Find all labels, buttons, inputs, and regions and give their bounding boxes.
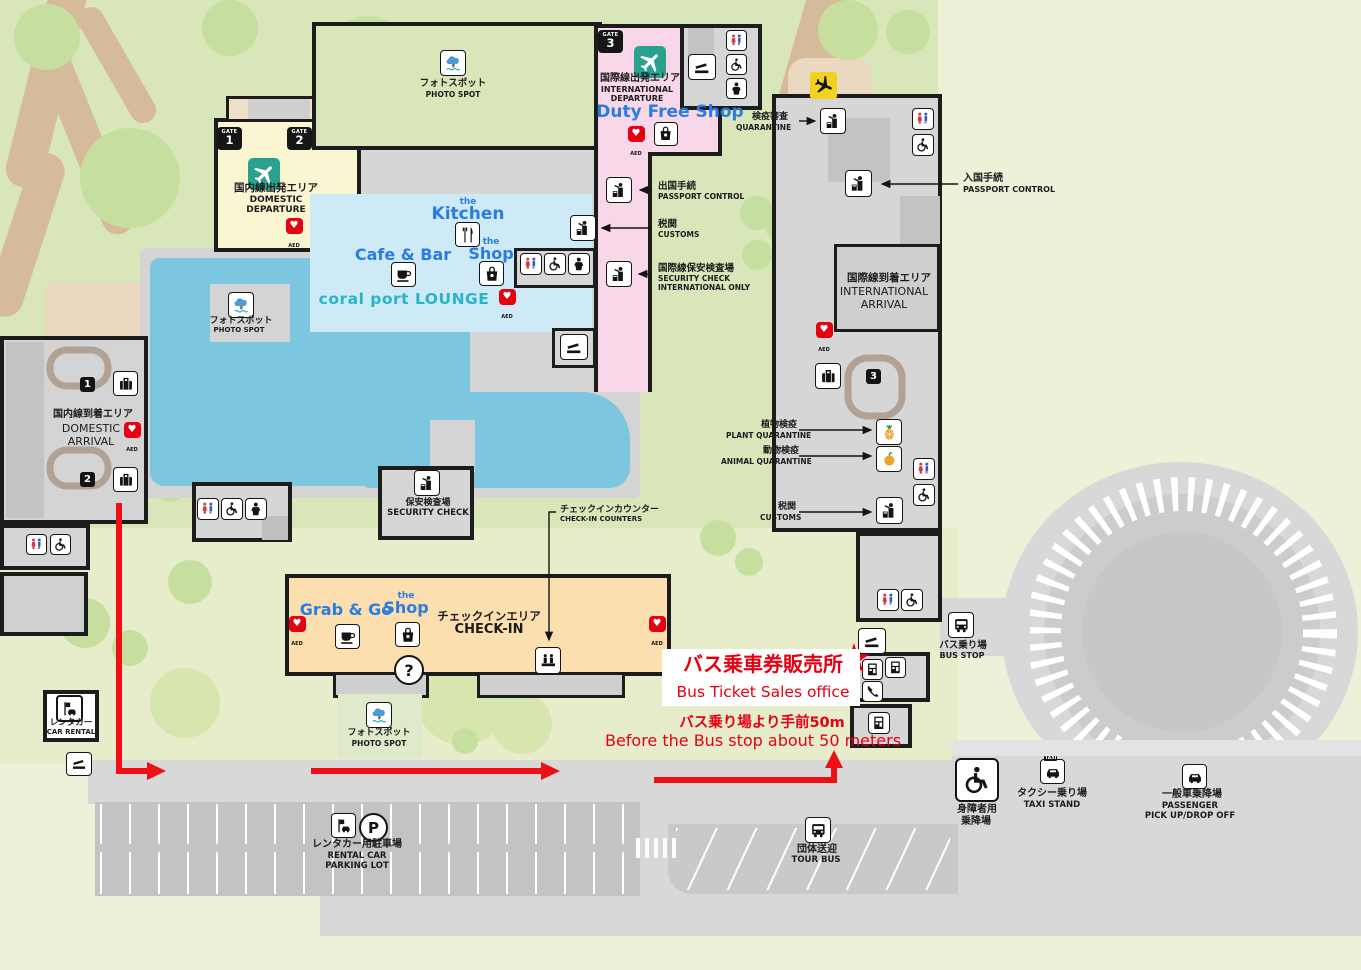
wheelchair-icon [901,589,923,611]
baby-care-icon [245,498,267,520]
quarantine-officer-icon [820,108,846,134]
smoking-icon [66,752,92,776]
tree [492,694,552,754]
restroom-icon [912,108,934,130]
security-intl-label-jp: 国際線保安検査場 [658,264,734,274]
wheelchair-icon [221,498,243,520]
security-intl-label-en2: INTERNATIONAL ONLY [658,284,750,292]
passport-control-officer-icon [606,177,632,203]
checkin-counters-label-en: CHECK-IN COUNTERS [560,516,642,523]
tour-bus-label-jp: 団体送迎 [797,845,837,856]
tree [80,128,180,228]
bus-ticket-office-label-jp: バス乗車券販売所 [683,654,843,675]
handicap-label-jp1: 身障者用 [957,805,997,816]
passenger-label-en2: PICK UP/DROP OFF [1145,812,1235,821]
sidewalk [952,740,1361,756]
customs-officer-icon [570,215,596,241]
grab-go-label: Grab & Go [300,602,393,619]
entry-passport-label-en: PASSPORT CONTROL [963,186,1055,194]
tree [886,10,930,54]
tour-bus-label-en: TOUR BUS [792,856,841,865]
cafe-icon [335,624,360,649]
information-icon: ? [394,655,424,685]
public-phone-icon [862,681,883,702]
aed-icon: ♥ [124,422,141,438]
international-arrival-label-jp: 国際線到着エリア [847,273,931,284]
customs-officer-icon [876,497,903,524]
restroom-icon [726,30,747,51]
checkin-area-label-jp: チェックインエリア [437,610,541,622]
shop-bag-icon [395,622,420,647]
belt-2-badge: 2 [80,472,95,487]
customs-arrival-label-jp: 税関 [778,503,796,512]
tree [14,4,80,70]
parking-icon: P [359,813,388,842]
international-arrival-label-en2: ARRIVAL [861,299,908,311]
photo-spot-south-label-en: PHOTO SPOT [352,740,407,748]
baby-care-icon [568,253,590,275]
handicap-pickup-icon [955,758,999,802]
aed-icon: ♥ [649,616,666,632]
photo-spot-icon [440,50,466,76]
aed-international-arrival: ♥ AED [814,322,834,354]
bus-office-note-en: Before the Bus stop about 50 meters [605,733,901,750]
room-restrooms-east [856,532,942,622]
international-arrival-label-en1: INTERNATIONAL [840,286,928,298]
passenger-pickup-car-icon [1182,764,1207,789]
animal-quarantine-icon [876,446,902,472]
inner-block [6,342,44,518]
tree [818,0,878,60]
aed-checkin-east: ♥ AED [647,616,667,648]
quarantine-label-jp: 検疫審査 [752,113,788,122]
shop-bag-icon [479,261,504,286]
security-check-officer-icon [606,261,632,287]
shop-label: Shop [468,246,513,263]
photo-spot-icon [228,292,254,318]
security-check-label-en: SECURITY CHECK [387,509,469,518]
wheelchair-icon [726,54,747,75]
tree [742,240,772,270]
animal-quarantine-label-jp: 動物検疫 [763,447,799,456]
inner-block [900,196,940,248]
tree [735,548,763,576]
tree [168,560,212,604]
cafe-icon [391,262,416,287]
cafe-bar-label: Cafe & Bar [355,247,451,264]
tree [150,668,220,738]
aed-international-departure: ♥ AED [626,126,646,158]
tree [112,630,148,666]
security-intl-label-en1: SECURITY CHECK [658,275,730,283]
checkin-counter-icon [535,647,561,674]
baggage-claim-icon [113,371,138,396]
wheelchair-icon [544,253,566,275]
photo-spot-south-label-jp: フォトスポット [347,729,410,738]
belt-1-badge: 1 [80,377,95,392]
baggage-claim-icon [113,467,138,492]
bus-ticket-office-label-en: Bus Ticket Sales office [677,684,850,700]
arrival-plane-icon [810,72,837,99]
exit-passport-label-jp: 出国手続 [658,182,696,192]
bus-stop-label-jp: バス乗り場 [939,641,987,651]
taxi-stand-label-en: TAXI STAND [1024,801,1080,810]
quarantine-label-en: QUARANTINE [736,124,791,132]
rental-parking-label-en1: RENTAL CAR [328,852,387,861]
plant-quarantine-label-jp: 植物検疫 [761,421,797,430]
checkin-counter-block [477,672,625,698]
entry-passport-label-jp: 入国手続 [963,174,1003,185]
checkin-area-label-en: CHECK-IN [455,623,524,637]
car-rental-label-jp: レンタカー [50,719,93,728]
aed-checkin-west: ♥ AED [287,616,307,648]
aed-icon: ♥ [499,289,516,305]
restroom-icon [913,458,935,480]
smoking-icon [688,54,716,80]
tree [452,728,478,754]
bus-stop-icon [948,612,974,638]
rental-parking-label-jp: レンタカー用駐車場 [312,840,402,851]
annex-block [262,516,288,540]
tree [700,520,736,556]
building-west-annex [0,572,88,636]
gate-2-badge: GATE2 [287,127,312,150]
car-rental-label-en: CAR RENTAL [47,729,96,736]
aed-icon: ♥ [286,218,303,234]
road-bottom [320,894,1361,936]
duty-free-bag-icon [654,122,678,146]
passenger-label-en1: PASSENGER [1162,802,1218,811]
kitchen-label: Kitchen [432,206,505,224]
restroom-icon [197,498,219,520]
rental-parking-car-icon [331,813,356,838]
wheelchair-icon [50,534,71,555]
taxi-stand-label-jp: タクシー乗り場 [1017,789,1087,800]
gate-3-badge: GATE3 [598,30,623,53]
wheelchair-icon [913,484,935,506]
baggage-claim-icon [815,363,841,389]
international-departure-label-jp: 国際線出発エリア [600,74,680,85]
photo-spot-label-en: PHOTO SPOT [426,91,481,99]
aed-icon: ♥ [628,126,645,142]
domestic-departure-label-jp: 国内線出発エリア [234,183,318,194]
photo-spot-label-jp: フォトスポット [420,79,487,89]
customs-label-en: CUSTOMS [658,231,699,239]
aed-domestic-departure: ♥ AED [284,218,304,250]
lounge-label: coral port LOUNGE [319,291,490,307]
terminal-hall [430,420,475,472]
rental-parking-label-en2: PARKING LOT [325,862,389,871]
aed-lounge: ♥ AED [497,289,517,321]
tour-bus-icon [805,817,831,843]
customs-label-jp: 税関 [658,220,677,230]
tree [202,0,258,56]
shop-checkin-label: Shop [383,600,428,617]
gate-1-badge: GATE1 [217,127,242,150]
wheelchair-icon [912,134,934,156]
bus-stop-label-en: BUS STOP [939,652,984,660]
restroom-icon [26,534,47,555]
smoking-icon [560,334,588,360]
baby-care-icon [726,78,747,99]
restroom-icon [520,253,542,275]
passenger-label-jp: 一般車乗降場 [1162,790,1222,801]
taxi-stand-icon [1040,759,1065,784]
handicap-label-jp2: 乗降場 [961,817,991,828]
restroom-icon [877,589,899,611]
domestic-arrival-label-jp: 国内線到着エリア [53,410,133,421]
exit-passport-label-en: PASSPORT CONTROL [658,193,744,201]
bus-office-note-jp: バス乗り場より手前50m [679,716,845,731]
passport-control-officer-icon [845,170,872,197]
domestic-departure-label-en2: DEPARTURE [246,206,305,215]
crosswalk [636,838,678,858]
vending-machine-icon [885,657,906,678]
jet-bridge-block [248,99,310,119]
plant-quarantine-label-en: PLANT QUARANTINE [726,432,811,440]
customs-arrival-label-en: CUSTOMS [760,514,801,522]
domestic-arrival-label-en2: ARRIVAL [68,436,115,448]
airport-floor-map: GATE1 GATE2 GATE3 1 2 3 ♥ AED ♥ AED ♥ AE… [0,0,1361,970]
taxi-sign: TAXI [1044,756,1057,761]
security-check-officer-icon [414,470,440,496]
aed-icon: ♥ [816,322,833,338]
aed-domestic-arrival: ♥ AED [122,422,142,454]
photo-spot-icon [366,702,392,728]
belt-3-badge: 3 [866,369,881,384]
photo-spot-pond-label-en: PHOTO SPOT [214,327,265,334]
domestic-arrival-label-en1: DOMESTIC [62,423,120,435]
duty-free-shop-label: Duty Free Shop [596,104,743,122]
plant-quarantine-icon [876,419,902,445]
animal-quarantine-label-en: ANIMAL QUARANTINE [721,458,812,466]
